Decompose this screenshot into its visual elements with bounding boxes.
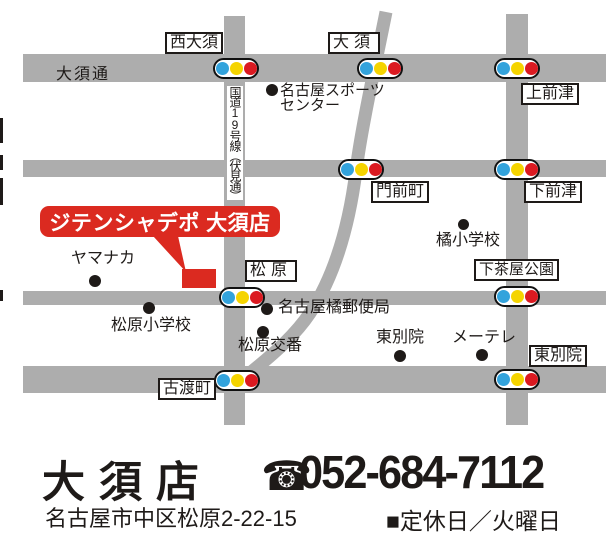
road-label-route19: 国道19号線（伏見通） <box>227 86 243 200</box>
store-address: 名古屋市中区松原2-22-15 <box>45 501 297 533</box>
signal-yellow-light <box>236 291 249 304</box>
poi-dot-higashi-betsuin-temple <box>394 350 406 362</box>
signal-yellow-light <box>511 163 524 176</box>
intersection-label-monzencho: 門前町 <box>371 181 429 203</box>
intersection-label-matsubara: 松原 <box>245 260 297 282</box>
traffic-signal-shimochaya-koen <box>494 286 540 307</box>
poi-label-me-tele: メーテレ <box>452 330 516 346</box>
signal-blue-light <box>497 163 510 176</box>
road-label-osu-dori: 大須通 <box>56 60 110 84</box>
signal-red-light <box>245 374 258 387</box>
signal-red-light <box>525 373 538 386</box>
traffic-signal-monzencho <box>338 159 384 180</box>
edge-mark <box>0 178 3 205</box>
poi-dot-yamanaka <box>89 275 101 287</box>
route19-label-strip: 国道19号線（伏見通） <box>227 86 243 200</box>
poi-label-nagoya-sports-center: 名古屋スポーツ センター <box>280 83 385 113</box>
signal-yellow-light <box>230 62 243 75</box>
signal-red-light <box>250 291 263 304</box>
intersection-label-osu: 大須 <box>328 32 380 54</box>
poi-dot-matsubara-elementary <box>143 302 155 314</box>
signal-blue-light <box>497 290 510 303</box>
traffic-signal-higashi-betsuin <box>494 369 540 390</box>
signal-red-light <box>388 62 401 75</box>
store-banner-text: ジテンシャデポ 大須店 <box>49 207 270 237</box>
signal-blue-light <box>360 62 373 75</box>
signal-blue-light <box>217 374 230 387</box>
poi-dot-nagoya-tachibana-post-office <box>261 303 273 315</box>
poi-label-higashi-betsuin-temple: 東別院 <box>376 330 424 346</box>
poi-label-line2: センター <box>280 97 340 114</box>
poi-dot-tachibana-elementary <box>458 219 469 230</box>
store-banner: ジテンシャデポ 大須店 <box>40 206 280 237</box>
signal-yellow-light <box>511 373 524 386</box>
poi-label-yamanaka: ヤマナカ <box>71 251 135 267</box>
traffic-signal-furuwatari-cho <box>214 370 260 391</box>
signal-blue-light <box>216 62 229 75</box>
signal-red-light <box>525 290 538 303</box>
signal-blue-light <box>497 373 510 386</box>
traffic-signal-nishi-osu <box>213 58 259 79</box>
signal-yellow-light <box>511 62 524 75</box>
intersection-label-nishi-osu: 西大須 <box>165 32 223 54</box>
traffic-signal-osu <box>357 58 403 79</box>
traffic-signal-shimomaezu <box>494 159 540 180</box>
edge-mark <box>0 118 3 143</box>
intersection-label-shimomaezu: 下前津 <box>524 181 582 203</box>
store-access-map: 大須通 国道19号線（伏見通） 西大須 大須 上前津 門前町 下前津 松原 下茶… <box>0 0 606 551</box>
banner-pointer <box>153 236 186 272</box>
poi-label-matsubara-koban: 松原交番 <box>238 338 302 354</box>
signal-red-light <box>525 62 538 75</box>
poi-dot-me-tele <box>476 349 488 361</box>
intersection-label-shimochaya-koen: 下茶屋公園 <box>474 259 559 281</box>
closed-day-note: ■定休日／火曜日 <box>386 502 561 536</box>
store-location-marker <box>182 269 216 288</box>
phone-number: 052-684-7112 <box>299 445 543 499</box>
signal-red-light <box>525 163 538 176</box>
signal-yellow-light <box>511 290 524 303</box>
signal-yellow-light <box>355 163 368 176</box>
intersection-label-higashi-betsuin: 東別院 <box>529 345 587 367</box>
intersection-label-furuwatari-cho: 古渡町 <box>158 378 216 400</box>
poi-label-tachibana-elementary: 橘小学校 <box>436 233 500 249</box>
edge-mark <box>0 155 3 170</box>
signal-blue-light <box>341 163 354 176</box>
edge-mark <box>0 290 3 301</box>
traffic-signal-kamimaezu <box>494 58 540 79</box>
signal-red-light <box>369 163 382 176</box>
poi-label-matsubara-elementary: 松原小学校 <box>111 318 191 334</box>
poi-label-nagoya-tachibana-post-office: 名古屋橘郵便局 <box>278 300 390 316</box>
intersection-label-kamimaezu: 上前津 <box>521 83 579 105</box>
poi-dot-nagoya-sports-center <box>266 84 278 96</box>
signal-yellow-light <box>231 374 244 387</box>
signal-red-light <box>244 62 257 75</box>
signal-blue-light <box>222 291 235 304</box>
traffic-signal-matsubara <box>219 287 265 308</box>
signal-yellow-light <box>374 62 387 75</box>
signal-blue-light <box>497 62 510 75</box>
